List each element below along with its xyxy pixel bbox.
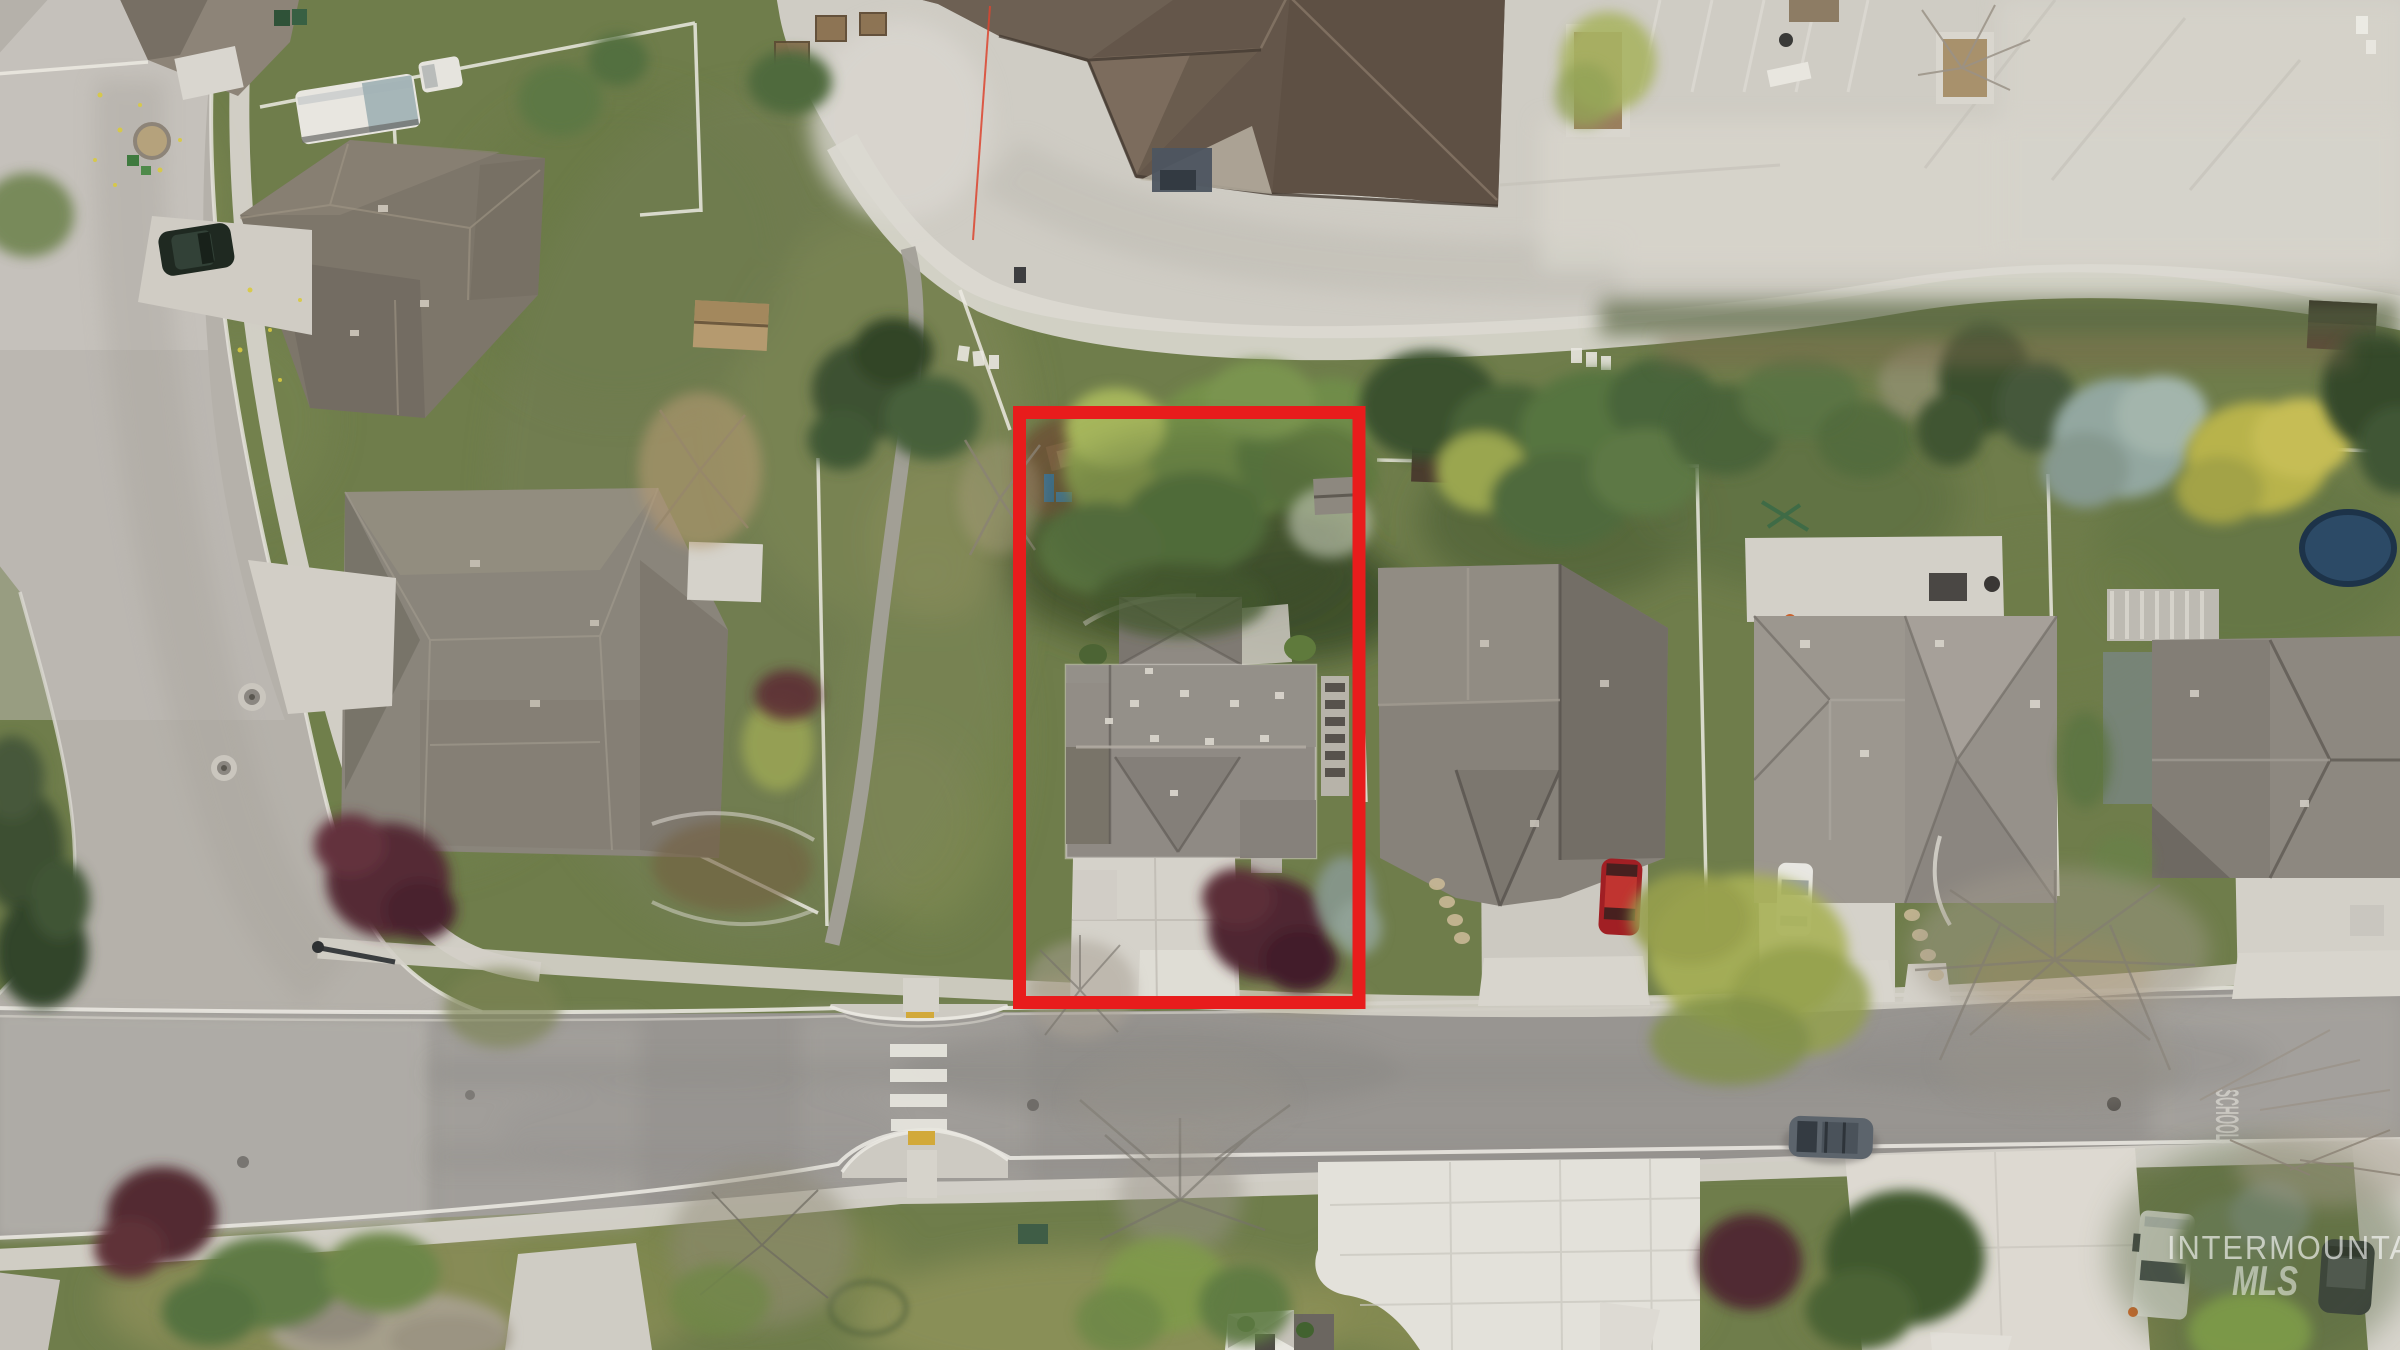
svg-text:MLS: MLS	[2232, 1257, 2298, 1304]
svg-text:SCHOOL: SCHOOL	[2209, 1089, 2245, 1141]
